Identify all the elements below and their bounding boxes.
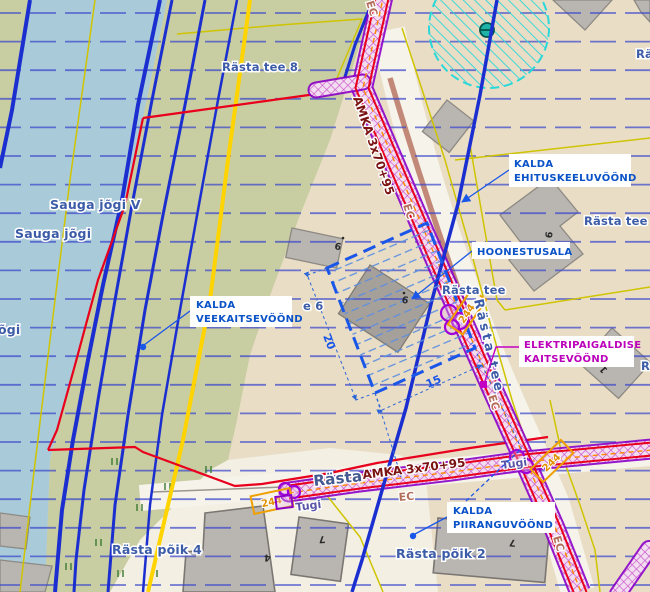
- svg-text:KAITSEVÖÖND: KAITSEVÖÖND: [524, 351, 609, 365]
- annotation-hoonestusala: HOONESTUSALA: [472, 242, 572, 259]
- svg-text:4: 4: [263, 551, 271, 563]
- svg-text:EHITUSKEELUVÖÖND: EHITUSKEELUVÖÖND: [514, 170, 637, 184]
- water-label-jogi-partial: õgi: [0, 322, 20, 337]
- annotation-kalda-piiranguvoond: KALDA PIIRANGUVÖÖND: [447, 502, 555, 533]
- street-label-right-partial: R: [641, 359, 650, 373]
- street-label-rasta-tee-9: Rästa tee 9: [584, 214, 650, 228]
- map-viewport[interactable]: 20 15 244 244 244 AMKA 3x70+95 AMKA 3x70…: [0, 0, 650, 592]
- svg-text:ELEKTRIPAIGALDISE: ELEKTRIPAIGALDISE: [524, 340, 641, 351]
- water-label-sauga-jogi-v: Sauga jõgi V: [50, 197, 141, 212]
- street-label-rasta-tee-partial: Rä: [636, 47, 650, 61]
- street-label-rasta-tee: Rästa tee: [442, 283, 506, 297]
- map-canvas[interactable]: 20 15 244 244 244 AMKA 3x70+95 AMKA 3x70…: [0, 0, 650, 592]
- svg-text:KALDA: KALDA: [514, 159, 553, 170]
- svg-text:7: 7: [509, 536, 517, 548]
- street-label-rasta-tee-8: Rästa tee 8: [222, 60, 298, 74]
- annotation-kalda-ehituskeeluvoond: KALDA EHITUSKEELUVÖÖND: [509, 154, 637, 187]
- svg-text:PIIRANGUVÖÖND: PIIRANGUVÖÖND: [453, 517, 553, 531]
- svg-text:KALDA: KALDA: [453, 506, 492, 517]
- svg-text:VEEKAITSEVÖÖND: VEEKAITSEVÖÖND: [196, 311, 303, 325]
- street-label-rasta-tee-6-partial: e 6: [303, 299, 323, 313]
- svg-text:KALDA: KALDA: [196, 300, 235, 311]
- street-label-rasta-poik-4: Rästa põik 4: [112, 542, 202, 557]
- svg-text:7: 7: [318, 533, 326, 545]
- svg-text:HOONESTUSALA: HOONESTUSALA: [477, 247, 572, 258]
- annotation-kalda-veekaitsevoond: KALDA VEEKAITSEVÖÖND: [190, 296, 303, 327]
- water-label-sauga-jogi: Sauga jõgi: [15, 226, 91, 241]
- cable-ec-label: EC: [398, 490, 415, 504]
- annotation-elektripaigaldise-kaitsevoond: ELEKTRIPAIGALDISE KAITSEVÖÖND: [519, 336, 641, 367]
- street-label-rasta-poik-2: Rästa põik 2: [396, 546, 486, 561]
